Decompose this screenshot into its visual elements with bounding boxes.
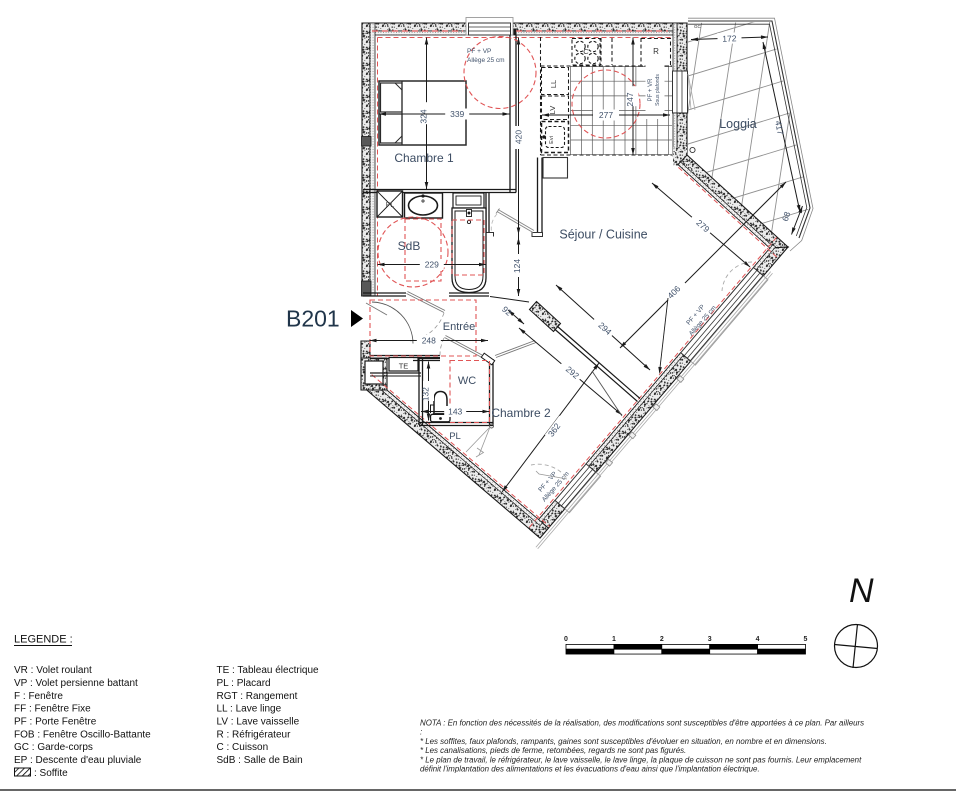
svg-text:5: 5 bbox=[804, 636, 808, 643]
svg-text:R: R bbox=[653, 47, 659, 56]
svg-text:3: 3 bbox=[708, 636, 712, 643]
svg-text:* Le plan de travail, le réfri: * Le plan de travail, le réfrigérateur, … bbox=[420, 755, 862, 764]
svg-text:339: 339 bbox=[450, 109, 464, 119]
svg-text:GC: GC bbox=[694, 24, 702, 29]
svg-text:PF + VP: PF + VP bbox=[467, 48, 491, 55]
svg-text:PL: PL bbox=[386, 202, 395, 209]
svg-text:Chambre 2: Chambre 2 bbox=[491, 406, 551, 420]
svg-text:248: 248 bbox=[422, 336, 436, 346]
svg-text:172: 172 bbox=[722, 33, 737, 43]
svg-text:PF + VR: PF + VR bbox=[648, 78, 654, 102]
svg-text:RGT : Rangement: RGT : Rangement bbox=[217, 691, 298, 702]
svg-text:définit l'implantation des ali: définit l'implantation des alimentations… bbox=[420, 765, 760, 774]
svg-text:Chambre 1: Chambre 1 bbox=[394, 151, 454, 165]
svg-text:PF : Porte Fenêtre: PF : Porte Fenêtre bbox=[14, 717, 97, 728]
svg-text:N: N bbox=[849, 572, 874, 610]
svg-text:SdB : Salle de Bain: SdB : Salle de Bain bbox=[217, 755, 303, 766]
svg-text:* Les canalisations, pieds de: * Les canalisations, pieds de ferme, ret… bbox=[420, 746, 686, 755]
svg-text:Allège 25 cm: Allège 25 cm bbox=[467, 57, 505, 64]
svg-text:: Soffite: : Soffite bbox=[34, 768, 68, 779]
svg-text:229: 229 bbox=[425, 260, 439, 270]
svg-text:EP : Descente d'eau pluviale: EP : Descente d'eau pluviale bbox=[14, 755, 142, 766]
svg-text:2: 2 bbox=[660, 636, 664, 643]
svg-text:Sous plafonds: Sous plafonds bbox=[655, 74, 661, 106]
svg-text:132: 132 bbox=[421, 387, 431, 401]
svg-text:Entrée: Entrée bbox=[443, 321, 475, 333]
svg-text:LV: LV bbox=[548, 106, 557, 115]
svg-text:F : Fenêtre: F : Fenêtre bbox=[14, 691, 63, 702]
svg-text:WC: WC bbox=[458, 375, 476, 387]
svg-text::: : bbox=[420, 728, 422, 737]
svg-text:124: 124 bbox=[512, 259, 522, 273]
svg-text:FOB : Fenêtre Oscillo-Battante: FOB : Fenêtre Oscillo-Battante bbox=[14, 729, 151, 740]
svg-text:GC : Garde-corps: GC : Garde-corps bbox=[14, 742, 93, 753]
svg-text:PL : Placard: PL : Placard bbox=[217, 678, 271, 689]
svg-text:SdB: SdB bbox=[398, 239, 421, 253]
svg-text:VR : Volet roulant: VR : Volet roulant bbox=[14, 665, 92, 676]
svg-text:LL : Lave linge: LL : Lave linge bbox=[217, 704, 282, 715]
svg-text:247: 247 bbox=[625, 92, 635, 106]
svg-text:FF : Fenêtre Fixe: FF : Fenêtre Fixe bbox=[14, 704, 91, 715]
svg-text:VP : Volet persienne battant: VP : Volet persienne battant bbox=[14, 678, 138, 689]
svg-text:LL: LL bbox=[549, 80, 558, 88]
svg-text:C: C bbox=[583, 47, 589, 56]
svg-text:* Les soffites, faux plafonds,: * Les soffites, faux plafonds, rampants,… bbox=[420, 737, 827, 746]
svg-text:Séjour / Cuisine: Séjour / Cuisine bbox=[559, 228, 647, 242]
svg-text:324: 324 bbox=[419, 109, 429, 123]
svg-text:Loggia: Loggia bbox=[719, 117, 757, 131]
svg-text:NOTA : En fonction des nécessi: NOTA : En fonction des nécessités de la … bbox=[420, 719, 864, 728]
svg-text:C : Cuisson: C : Cuisson bbox=[217, 742, 269, 753]
svg-text:LV : Lave vaisselle: LV : Lave vaisselle bbox=[217, 717, 300, 728]
svg-text:Evi: Evi bbox=[549, 136, 555, 144]
svg-text:R : Réfrigérateur: R : Réfrigérateur bbox=[217, 729, 292, 740]
svg-text:LEGENDE :: LEGENDE : bbox=[14, 634, 73, 646]
svg-text:1: 1 bbox=[612, 636, 616, 643]
svg-text:PL: PL bbox=[449, 431, 461, 442]
svg-text:143: 143 bbox=[448, 407, 462, 417]
svg-text:4: 4 bbox=[756, 636, 760, 643]
svg-text:TE: TE bbox=[399, 362, 409, 371]
svg-text:TE : Tableau électrique: TE : Tableau électrique bbox=[217, 665, 320, 676]
svg-text:B201: B201 bbox=[286, 306, 340, 332]
svg-text:420: 420 bbox=[514, 130, 524, 144]
svg-text:0: 0 bbox=[564, 636, 568, 643]
svg-text:277: 277 bbox=[599, 110, 613, 120]
